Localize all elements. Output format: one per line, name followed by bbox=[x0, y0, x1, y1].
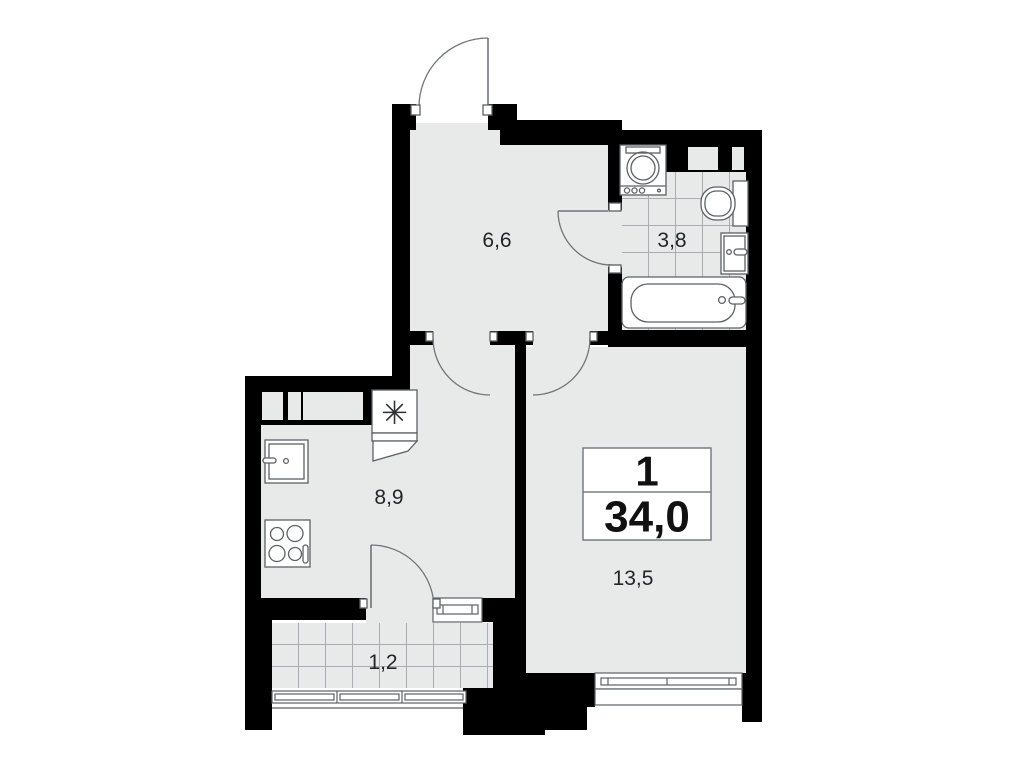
entrance-door-arc bbox=[411, 38, 492, 115]
hallway-area-label: 6,6 bbox=[482, 229, 511, 252]
vent-inset bbox=[262, 392, 283, 420]
badge-total-area: 34,0 bbox=[604, 493, 690, 542]
vent-inset bbox=[303, 392, 363, 420]
floor-plan-page: ✳ bbox=[0, 0, 1024, 768]
apartment-badge: 1 34,0 bbox=[583, 448, 711, 542]
wall-segment bbox=[513, 707, 587, 730]
stove-icon bbox=[265, 520, 310, 567]
floor-plan: ✳ bbox=[0, 0, 1024, 768]
wall-segment bbox=[608, 130, 762, 145]
wall-segment bbox=[608, 330, 762, 347]
kitchen-door-threshold bbox=[433, 331, 490, 345]
living-room-area-label: 13,5 bbox=[613, 567, 654, 590]
wall-segment bbox=[482, 598, 493, 622]
wall-segment bbox=[666, 145, 686, 172]
badge-rooms-count: 1 bbox=[635, 448, 658, 495]
wall-segment bbox=[500, 120, 622, 145]
vent-inset bbox=[688, 147, 718, 170]
wall-segment bbox=[545, 673, 595, 707]
wall-segment bbox=[742, 673, 762, 722]
living-room-window bbox=[595, 673, 742, 705]
washing-machine-icon bbox=[620, 145, 666, 195]
vent-inset bbox=[288, 392, 301, 420]
wall-segment bbox=[245, 612, 272, 730]
living-door-threshold bbox=[533, 338, 590, 347]
wall-segment bbox=[261, 598, 366, 620]
bathroom-sink-icon bbox=[721, 233, 748, 274]
kitchen-area-label: 8,9 bbox=[374, 486, 403, 509]
balcony-area-label: 1,2 bbox=[368, 651, 397, 674]
balcony-door-threshold bbox=[366, 598, 433, 623]
wall-segment bbox=[392, 104, 410, 390]
bathroom-door-threshold bbox=[608, 210, 622, 267]
balcony-glazing bbox=[272, 691, 466, 708]
wall-segment bbox=[608, 267, 622, 330]
bathtub-icon bbox=[622, 277, 746, 328]
bathroom-area-label: 3,8 bbox=[657, 229, 686, 252]
kitchen-sink-icon bbox=[263, 440, 308, 483]
vent-inset bbox=[732, 147, 744, 170]
vent-shaft-symbol: ✳ bbox=[381, 395, 408, 431]
